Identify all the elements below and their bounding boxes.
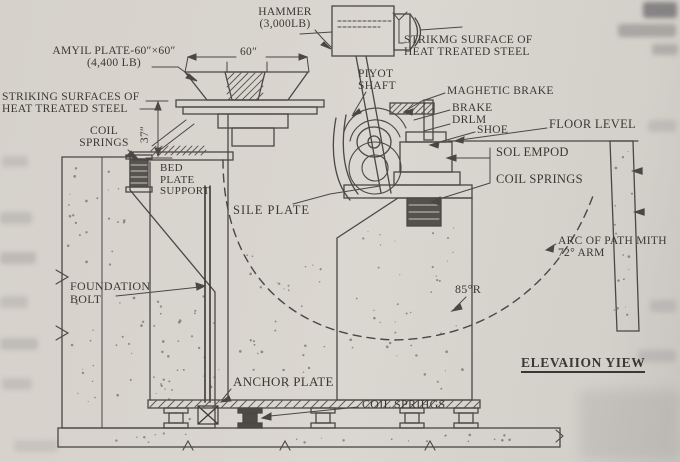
anchor-plate-label: ANCHOR PLATE [233,375,334,389]
sole-plate-label: SILE PLATE [233,204,310,217]
right-pedestal [337,198,472,400]
anvil-plate-assembly [176,62,324,146]
brake-drum-label: BRAKEDRLM [452,102,492,126]
width-dimension-label: 60″ [240,46,257,58]
striking-surface-right-label: STRIKMG SURFACE OFHEAT TREATED STEEL [404,34,533,58]
pivot-shaft-label: PIYOTSHAFT [358,68,396,92]
view-title: ELEVAIION YIEW [521,356,645,373]
floor-level-label: FLOOR LEVEL [549,118,636,131]
coil-springs-left-label: COILSPRINGS [76,125,132,149]
coil-springs-right-label: COIL SPRINGS [496,173,583,186]
anvil-plate-label: AMYIL PLATE-60″×60″(4,400 LB) [38,45,190,69]
sole-support-label: SOL EMPOD [496,146,569,159]
magnetic-brake-label: MAGHETIC BRAKE [447,85,554,97]
base-slab [58,428,563,450]
radius-label: 85°R [455,283,481,296]
leader-lines [116,12,556,420]
diagram-canvas: HAMMER(3,000LB) STRIKMG SURFACE OFHEAT T… [0,0,680,462]
hammer-path-arc [223,160,594,340]
shoe-label: SHOE [477,124,508,136]
height-dimension-label: 37″ [139,113,151,143]
striking-surfaces-left-label: STRIKING SURFACES OFHEAT TREATED STEEL [2,91,139,115]
bed-plate-support-label: BEDPLATESUPPORT [160,163,210,198]
coil-springs-bottom-label: COIL SPRIHGS [362,398,446,411]
foundation-bolt-label: FOUNDATIONBOLT [70,280,150,305]
hammer-label: HAMMER(3,000LB) [243,6,327,30]
arc-of-path-label: ARC OF PATH MITH72° ARM [558,235,667,259]
